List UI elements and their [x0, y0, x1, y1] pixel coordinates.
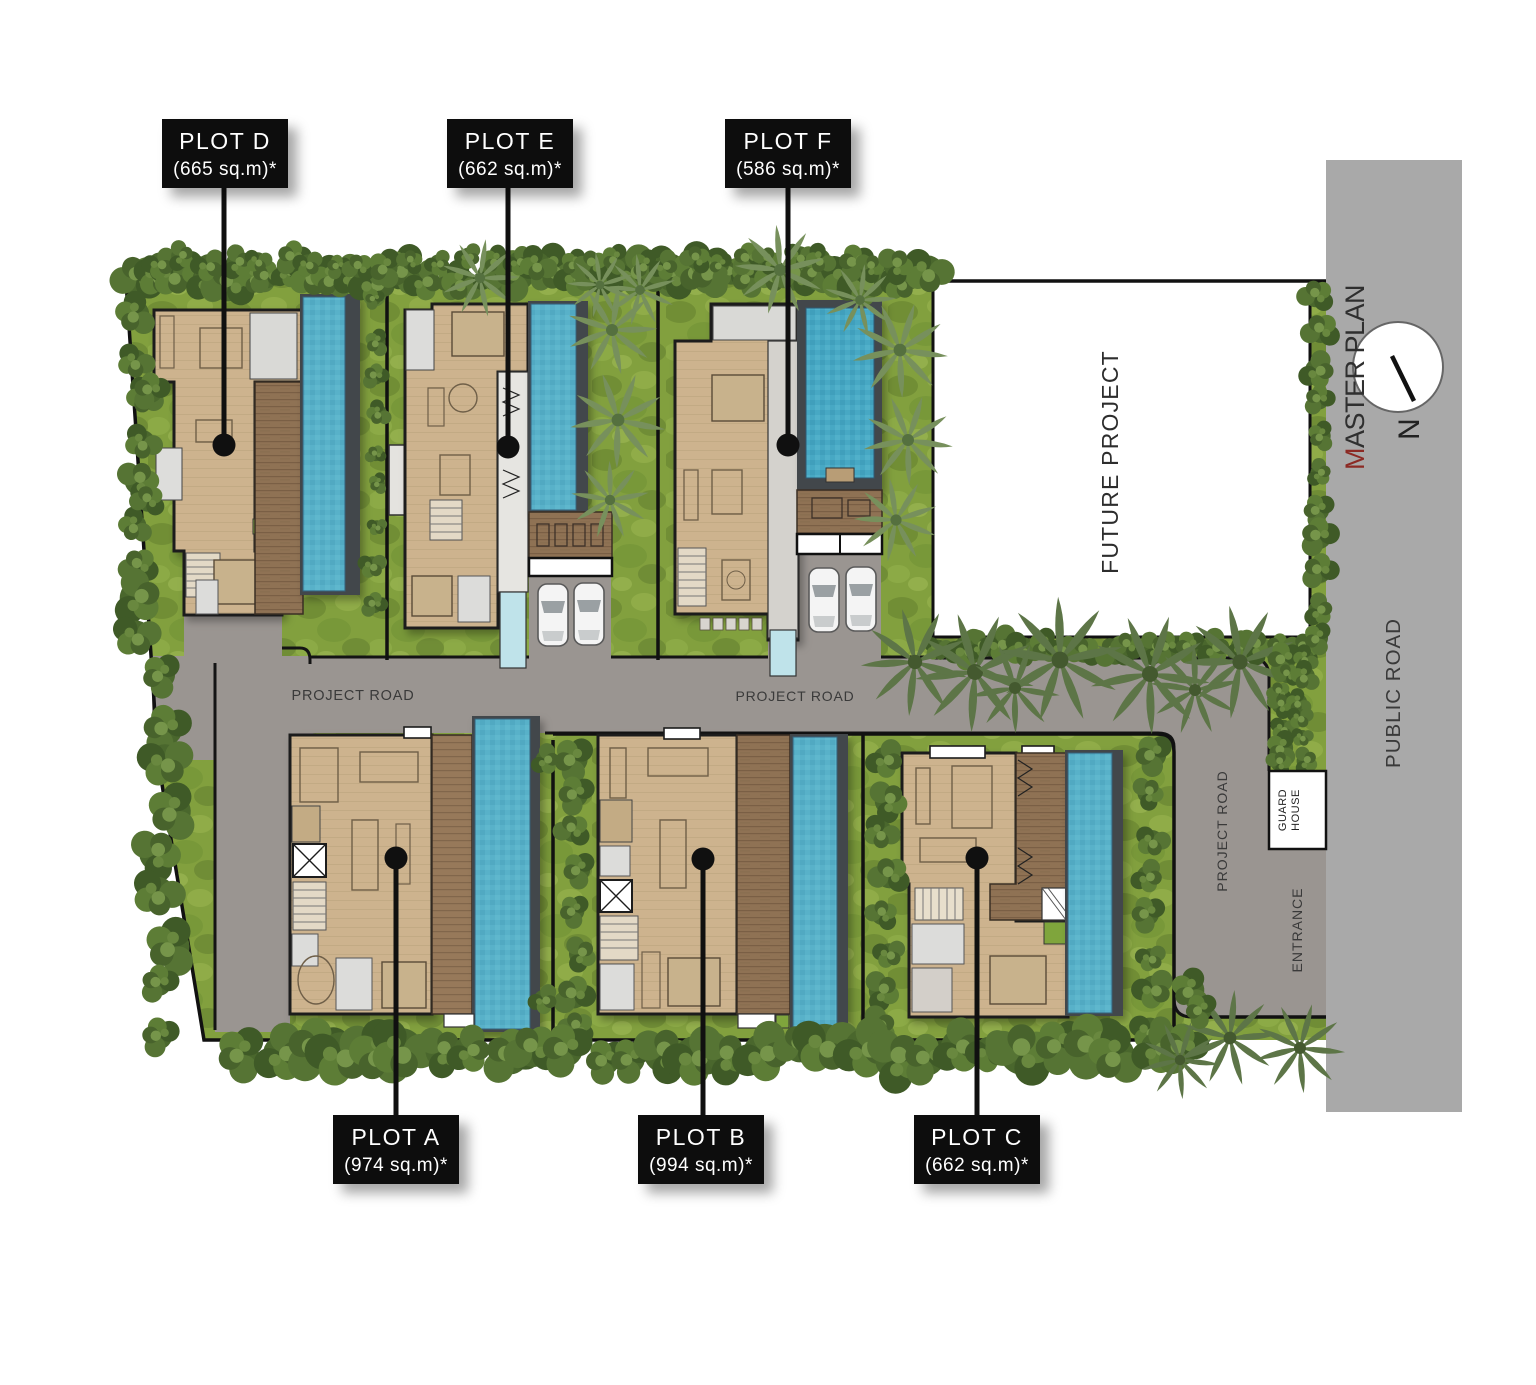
- svg-text:GUARD: GUARD: [1277, 789, 1289, 831]
- svg-text:(662 sq.m)*: (662 sq.m)*: [925, 1155, 1029, 1176]
- svg-text:(662 sq.m)*: (662 sq.m)*: [458, 159, 562, 180]
- svg-text:PROJECT ROAD: PROJECT ROAD: [735, 688, 854, 704]
- svg-text:(994 sq.m)*: (994 sq.m)*: [649, 1155, 753, 1176]
- svg-text:HOUSE: HOUSE: [1290, 789, 1302, 831]
- svg-text:MASTER PLAN: MASTER PLAN: [1340, 285, 1370, 470]
- svg-text:PUBLIC ROAD: PUBLIC ROAD: [1382, 618, 1405, 768]
- svg-text:PLOT D: PLOT D: [179, 128, 271, 154]
- svg-text:PLOT A: PLOT A: [351, 1124, 440, 1150]
- svg-text:(974 sq.m)*: (974 sq.m)*: [344, 1155, 448, 1176]
- svg-text:PLOT E: PLOT E: [465, 128, 555, 154]
- svg-text:ENTRANCE: ENTRANCE: [1289, 887, 1305, 972]
- svg-text:(586 sq.m)*: (586 sq.m)*: [736, 159, 840, 180]
- svg-text:PLOT C: PLOT C: [931, 1124, 1023, 1150]
- svg-text:PLOT F: PLOT F: [743, 128, 832, 154]
- svg-text:PLOT B: PLOT B: [656, 1124, 746, 1150]
- svg-text:N: N: [1393, 418, 1426, 440]
- svg-text:FUTURE PROJECT: FUTURE PROJECT: [1097, 350, 1123, 574]
- svg-text:PROJECT ROAD: PROJECT ROAD: [292, 688, 415, 704]
- svg-text:(665 sq.m)*: (665 sq.m)*: [173, 159, 277, 180]
- svg-text:PROJECT ROAD: PROJECT ROAD: [1214, 770, 1230, 891]
